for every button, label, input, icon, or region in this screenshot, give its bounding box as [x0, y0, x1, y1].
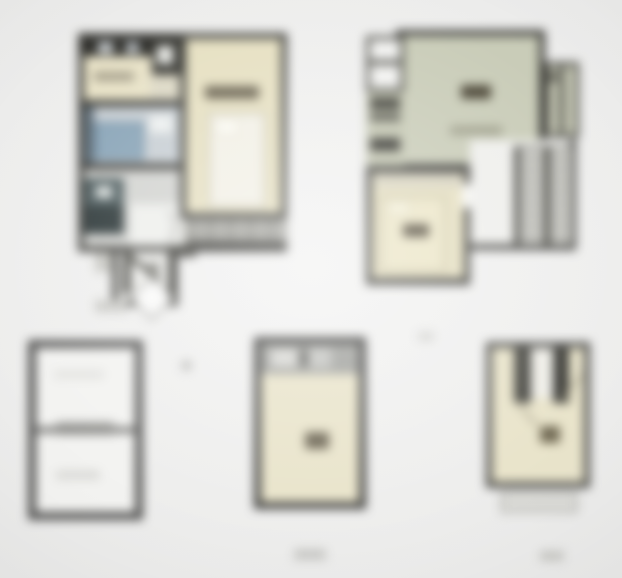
- plan2-kitchen-counter-1: [370, 98, 400, 109]
- plan2-stair-flight-1: [520, 146, 544, 244]
- plan1-washer-window: [96, 186, 112, 198]
- plan1-wall-bath-hall: [78, 163, 183, 170]
- plan-bottom-middle-room: [254, 337, 366, 509]
- plan4-area-label: [305, 432, 329, 449]
- plan1-sink-kitchen: [126, 42, 139, 53]
- plan5-caption-smudge: [540, 551, 564, 561]
- plan1-bed: [208, 112, 266, 208]
- plan2-side-room-mark: [549, 72, 557, 82]
- plan2-stair-flight-2: [550, 146, 572, 244]
- plan5-slope-line-left: [515, 400, 539, 427]
- plan1-bedroom-area-label: [205, 86, 259, 99]
- plan2-kitchen-counter-2: [370, 113, 400, 121]
- plan3-divider-smudge: [56, 422, 114, 435]
- plan5-center-gap: [531, 348, 553, 398]
- plan1-bathroom-cabinet: [84, 107, 94, 163]
- plan1-washer-dark: [84, 206, 124, 234]
- plan2-bed-pillow: [388, 201, 410, 215]
- plan1-entry-wall-corner: [168, 245, 196, 257]
- blurred-plan-layer: [0, 0, 622, 578]
- plan1-wall-kitchen-bath: [78, 100, 183, 107]
- plan1-kitchen-area-label: [94, 72, 134, 81]
- plan2-living-area-label: [461, 85, 491, 99]
- plan1-bathtub: [94, 122, 144, 160]
- sheet-mark-a: [182, 361, 191, 370]
- plan5-roof-strip-left: [514, 348, 531, 403]
- plan1-bathroom-sink: [148, 114, 174, 134]
- plan4-cabinet-dark: [301, 350, 307, 366]
- plan5-balcony-strip: [500, 491, 578, 513]
- plan2-side-rooms-divider: [559, 62, 564, 138]
- plan2-bedroom-dresser: [374, 173, 462, 187]
- plan1-entry-smudge: [148, 262, 160, 272]
- plan5-area-label: [540, 426, 560, 443]
- floor-plan-sheet: [0, 0, 622, 578]
- sheet-mark-b: [418, 332, 434, 341]
- plan3-lower-label-smudge: [56, 470, 100, 480]
- plan1-balcony: [186, 219, 287, 246]
- plan1-fridge-door: [157, 46, 173, 64]
- plan1-entry-step: [95, 252, 112, 272]
- plan3-upper-label-smudge: [54, 370, 104, 379]
- plan4-cabinet-blob-2: [309, 348, 331, 368]
- plan-bottom-left-unfurnished: [28, 340, 143, 520]
- plan2-kitchen-counter-3: [370, 138, 400, 151]
- plan4-cabinet-blob-1: [271, 349, 297, 367]
- plan4-caption-smudge: [294, 549, 326, 560]
- plan-bottom-right-attic-room: [486, 342, 590, 488]
- plan1-door-swing-arc: [132, 204, 176, 248]
- plan1-entry-gray-left: [95, 300, 127, 312]
- plan1-stove: [98, 42, 113, 53]
- plan1-bed-pillow: [215, 119, 239, 135]
- plan2-small-rooms-divider: [366, 60, 404, 65]
- plan2-bedroom-area-label: [403, 224, 429, 237]
- plan2-living-sublabel: [450, 126, 502, 135]
